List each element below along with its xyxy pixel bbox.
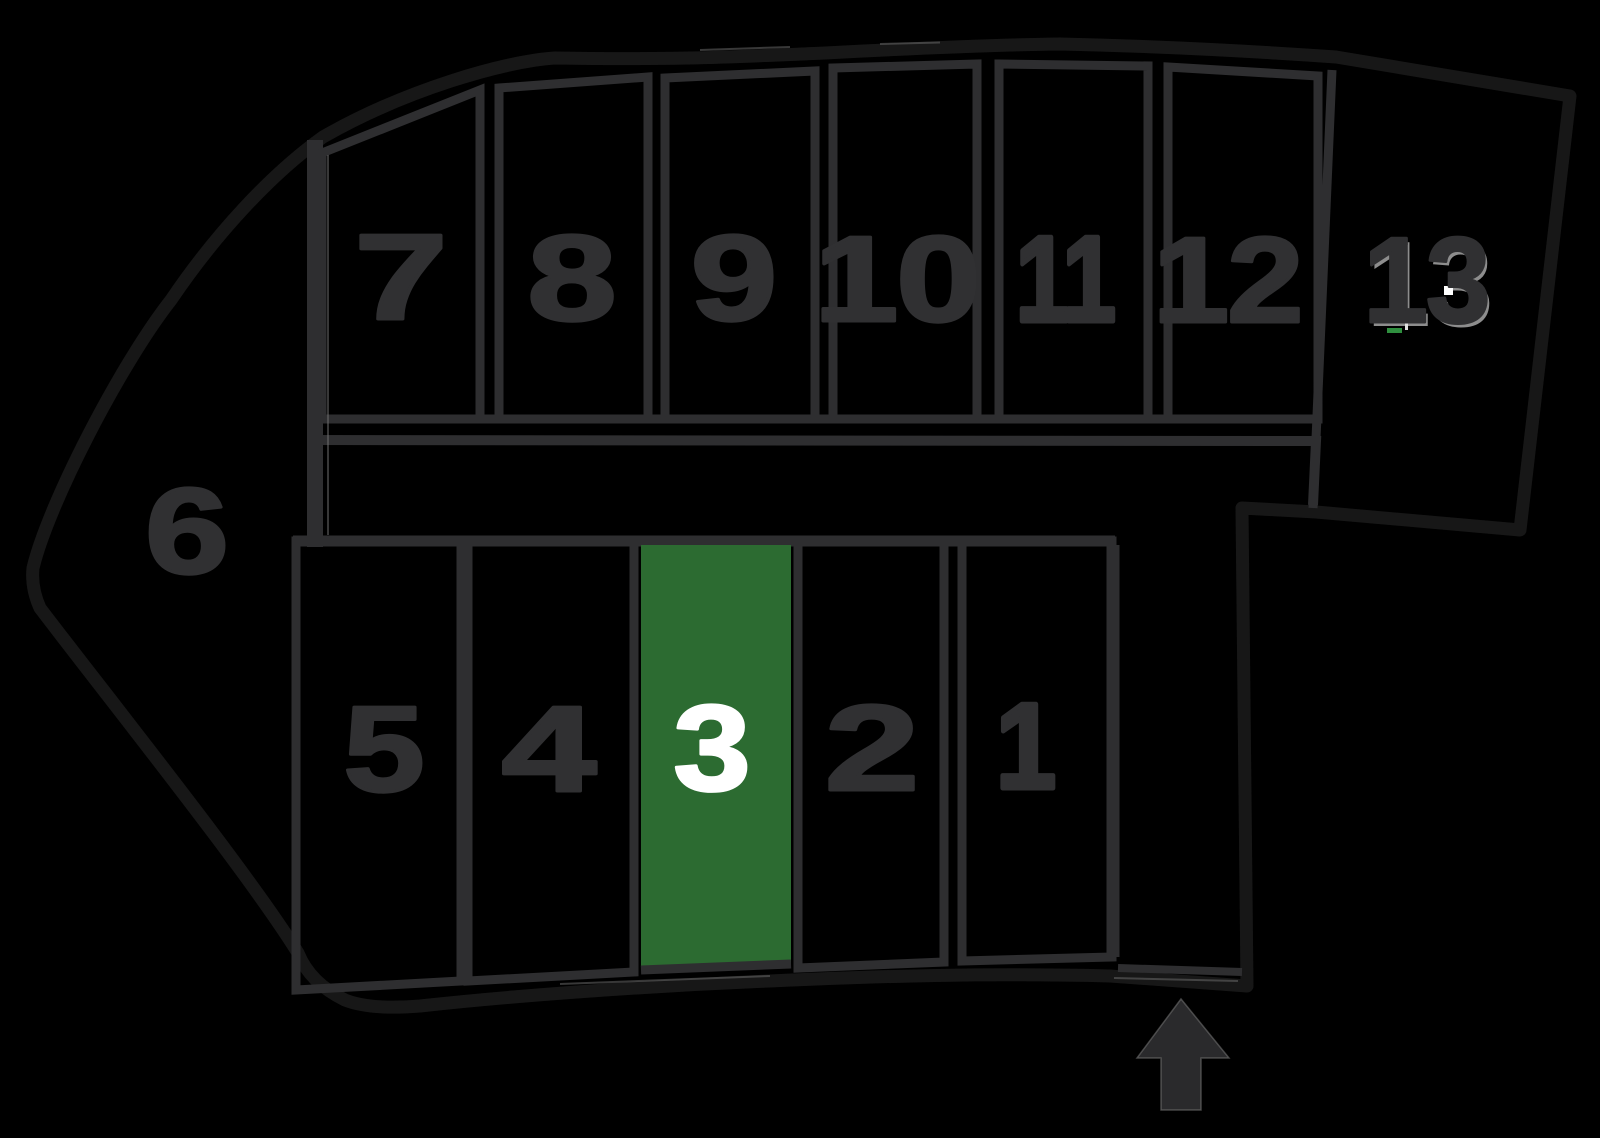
svg-text:10: 10 <box>814 211 979 347</box>
svg-text:4: 4 <box>502 682 597 818</box>
svg-text:11: 11 <box>1016 211 1115 347</box>
svg-text:9: 9 <box>691 209 778 346</box>
svg-text:13: 13 <box>1363 212 1488 348</box>
svg-text:12: 12 <box>1153 211 1302 348</box>
svg-text:6: 6 <box>145 464 229 600</box>
svg-text:8: 8 <box>527 211 617 347</box>
svg-text:7: 7 <box>354 209 448 345</box>
svg-text:5: 5 <box>343 681 424 818</box>
svg-text:2: 2 <box>825 681 920 817</box>
svg-text:1: 1 <box>996 678 1056 814</box>
svg-text:3: 3 <box>673 680 750 816</box>
